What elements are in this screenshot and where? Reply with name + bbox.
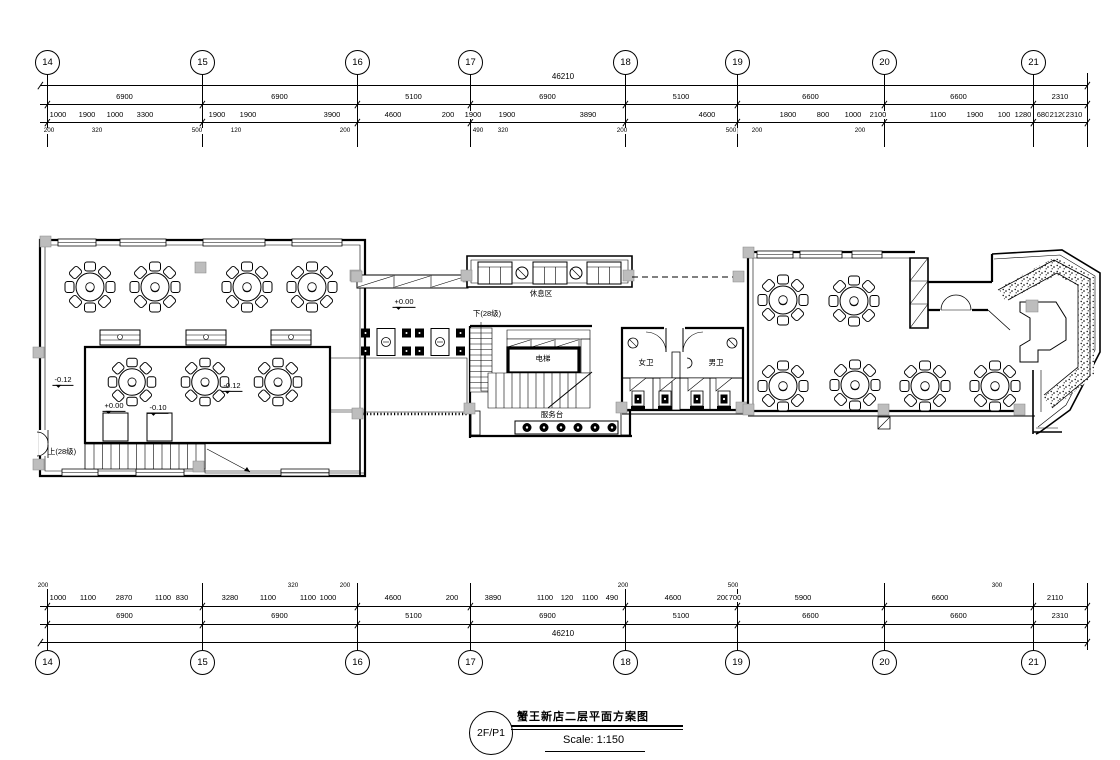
drawing-number-bubble: 2F/P1 [469,711,513,755]
grid-bubble: 14 [35,50,60,75]
grid-bubble: 19 [725,650,750,675]
dimension-label: 1100 [581,594,599,602]
dimension-label: 6900 [270,93,289,101]
dimension-label: 490 [605,594,620,602]
dimension-label: 6900 [270,612,289,620]
dimension-label: 2310 [1065,111,1084,119]
dimension-offset-label: 490 [472,128,485,134]
octagon-feature [988,250,1100,434]
level-mark: -0.12 [221,382,242,392]
room-label: 女卫 [639,359,654,367]
room-label: 电梯 [536,355,551,363]
dimension-label: 5100 [404,93,423,101]
grid-line [47,73,48,147]
overall-dimension-label: 46210 [551,73,575,81]
level-mark: -0.10 [147,404,168,414]
grid-line [357,73,358,147]
grid-bubble: 19 [725,50,750,75]
grid-line [737,73,738,147]
sideboard [100,330,311,345]
dimension-label: 1000 [49,111,68,119]
dimension-label: 2110 [1046,594,1064,602]
grid-bubble: 20 [872,50,897,75]
dimension-line [40,104,1087,105]
dimension-offset-label: 200 [616,128,629,134]
dimension-label: 4600 [664,594,683,602]
grid-bubble: 17 [458,650,483,675]
grid-line [202,583,203,650]
dimension-label: 830 [175,594,190,602]
dimension-label: 5100 [672,612,691,620]
grid-bubble: 21 [1021,650,1046,675]
dimension-label: 4600 [384,594,403,602]
grid-bubble: 18 [613,50,638,75]
dimension-line [40,642,1087,643]
dimension-line [40,122,1087,123]
scale-underline [545,751,645,752]
dimension-label: 5100 [404,612,423,620]
dimension-offset-label: 200 [751,128,764,134]
drawing-title: 蟹王新店二层平面方案图 [517,708,649,724]
grid-bubble: 21 [1021,50,1046,75]
room-label: 休息区 [530,290,553,298]
dimension-offset-label: 320 [497,128,510,134]
dimension-label: 1100 [929,111,947,119]
overall-dimension-label: 46210 [551,630,575,638]
lounge [461,256,744,287]
dimension-label: 4600 [698,111,717,119]
dimension-label: 1000 [106,111,125,119]
floor-plan-drawing [0,0,1120,760]
dimension-label: 3890 [579,111,598,119]
dimension-label: 1900 [239,111,258,119]
dimension-label: 200 [445,594,460,602]
grid-bubble: 16 [345,650,370,675]
dimension-label: 800 [816,111,831,119]
grid-line [202,73,203,147]
dimension-offset-label: 200 [617,583,630,589]
room-label: 下(28级) [473,310,501,318]
title-underline [511,729,683,730]
private-dining-room [85,347,330,443]
dimension-offset-label: 120 [230,128,243,134]
dimension-label: 2870 [115,594,134,602]
window-icon [757,251,882,258]
grid-bubble: 16 [345,50,370,75]
dimension-label: 1100 [259,594,277,602]
grid-line [357,583,358,650]
scale-label: Scale: 1:150 [563,734,624,746]
room-label: 服务台 [541,411,564,419]
grid-bubble: 18 [613,650,638,675]
dimension-label: 3280 [221,594,240,602]
dimension-offset-label: 200 [339,128,352,134]
dimension-label: 6900 [538,93,557,101]
dimension-line [40,624,1087,625]
dimension-offset-label: 200 [339,583,352,589]
glazed-pier [910,258,928,328]
dimension-label: 6900 [538,612,557,620]
stair-core [464,322,632,438]
level-mark: +0.00 [393,298,416,308]
dimension-offset-label: 200 [854,128,867,134]
dimension-label: 1900 [498,111,517,119]
dimension-label: 1000 [844,111,863,119]
level-mark: -0.12 [52,376,73,386]
floor-plan-sheet: 1415161718192021690069005100690051006600… [0,0,1120,760]
dimension-label: 6900 [115,612,134,620]
dimension-label: 6600 [801,93,820,101]
grid-line [470,583,471,650]
dimension-label: 1100 [79,594,97,602]
dimension-label: 1100 [299,594,317,602]
dimension-label: 6600 [931,594,950,602]
dimension-label: 1000 [319,594,338,602]
double-door-icon [940,295,972,312]
elevator [507,330,590,373]
dimension-label: 5900 [794,594,813,602]
grid-bubble: 14 [35,650,60,675]
dimension-label: 1900 [966,111,985,119]
dimension-label: 6600 [949,612,968,620]
grid-line [884,583,885,650]
left-dining-hall [33,236,467,476]
dimension-label: 700 [728,594,743,602]
room-label: 上(28级) [48,448,76,456]
dimension-label: 2100 [869,111,888,119]
dimension-offset-label: 500 [191,128,204,134]
dimension-label: 100 [997,111,1012,119]
dimension-offset-label: 320 [91,128,104,134]
dimension-line [40,85,1087,86]
room-label: 男卫 [709,359,724,367]
service-counter [515,421,618,434]
dimension-label: 120 [560,594,575,602]
dimension-label: 1900 [464,111,483,119]
dimension-label: 2310 [1051,612,1070,620]
grid-line [1033,73,1034,147]
dimension-label: 1280 [1014,111,1033,119]
stairs-lower-flight [488,372,592,408]
dimension-label: 6900 [115,93,134,101]
dimension-label: 3900 [323,111,342,119]
dimension-label: 1800 [779,111,798,119]
dimension-label: 3890 [484,594,503,602]
dimension-offset-label: 300 [991,583,1004,589]
dimension-offset-label: 200 [43,128,56,134]
grid-line [625,583,626,650]
grid-bubble: 15 [190,50,215,75]
title-underline [511,725,683,727]
dimension-line [40,606,1087,607]
dimension-label: 1900 [208,111,227,119]
dimension-label: 1100 [154,594,172,602]
grid-bubble: 15 [190,650,215,675]
dimension-label: 1000 [49,594,68,602]
dimension-label: 6600 [801,612,820,620]
drawing-number: 2F/P1 [477,727,505,739]
dimension-label: 1100 [536,594,554,602]
grid-line [1033,583,1034,650]
dimension-label: 5100 [672,93,691,101]
dimension-label: 2310 [1051,93,1070,101]
dimension-label: 6600 [949,93,968,101]
dimension-offset-label: 500 [727,583,740,589]
dimension-label: 200 [441,111,456,119]
dimension-offset-label: 500 [725,128,738,134]
dimension-offset-label: 200 [37,583,50,589]
dimension-offset-label: 320 [287,583,300,589]
grid-line [625,73,626,147]
dimension-label: 3300 [136,111,155,119]
grid-bubble: 20 [872,650,897,675]
double-door-icon [37,430,48,458]
level-mark: +0.00 [103,402,126,412]
restrooms [616,325,748,414]
dimension-label: 4600 [384,111,403,119]
grid-bubble: 17 [458,50,483,75]
dimension-label: 1900 [78,111,97,119]
